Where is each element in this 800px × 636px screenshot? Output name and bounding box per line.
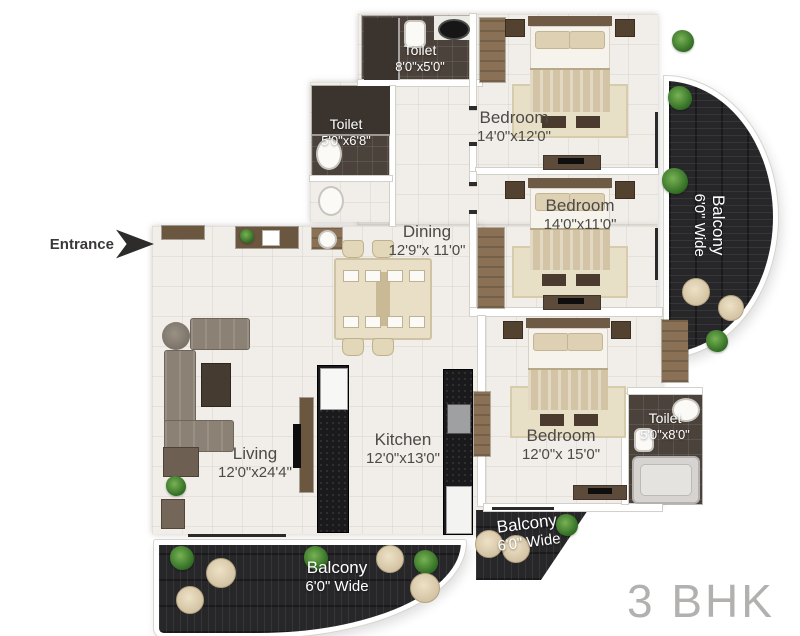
toilet-bottom-label: Toilet 5'0"x8'0" <box>626 410 704 442</box>
nightstand <box>504 322 522 338</box>
dining-chair <box>342 338 364 356</box>
sideboard-tray <box>262 230 280 246</box>
sink <box>446 486 472 534</box>
bathtub <box>632 456 700 504</box>
balcony-chair <box>410 573 440 603</box>
tv <box>558 298 584 304</box>
wall <box>390 86 395 226</box>
bed-bench <box>542 274 566 286</box>
bed-bench <box>574 414 598 426</box>
plan-type-label: 3 BHK <box>612 574 790 628</box>
window-mark <box>655 228 658 280</box>
floor-plan: Toilet 8'0"x5'0" Toilet 5'0"x6'8" Bedroo… <box>0 0 800 636</box>
bed-bench <box>540 414 564 426</box>
tv <box>558 158 584 164</box>
plant <box>170 546 194 570</box>
coffee-table <box>202 364 230 406</box>
plant <box>662 168 688 194</box>
wall <box>470 308 662 316</box>
bedroom-mid-label: Bedroom 14'0"x11'0" <box>504 196 656 234</box>
toilet-mid-label: Toilet 5'0"x6'8" <box>302 116 390 148</box>
nightstand <box>506 20 524 36</box>
bed <box>528 16 612 112</box>
plant <box>668 86 692 110</box>
wall <box>310 176 392 181</box>
balcony-chair <box>718 295 744 321</box>
tv <box>588 488 612 494</box>
nightstand <box>612 322 630 338</box>
plant <box>166 476 186 496</box>
entrance-arrow-icon <box>116 226 154 262</box>
dining-table <box>334 258 432 340</box>
plant <box>706 330 728 352</box>
nightstand <box>616 20 634 36</box>
balcony-bottom-label: Balcony 6'0" Wide <box>268 558 406 596</box>
basin <box>318 230 337 249</box>
sofa <box>190 318 250 350</box>
window-mark <box>492 507 554 510</box>
window-mark <box>655 112 658 168</box>
dining-chair <box>372 338 394 356</box>
balcony-right-label: Balcony 6'0" Wide <box>690 166 728 284</box>
tv-unit <box>164 448 198 476</box>
door-jamb <box>469 210 477 214</box>
door-jamb <box>469 182 477 186</box>
window-mark <box>188 534 286 537</box>
plant <box>414 550 438 574</box>
wall <box>628 388 702 394</box>
bed <box>526 318 610 410</box>
kitchen-label: Kitchen 12'0"x13'0" <box>344 430 462 468</box>
side-table <box>162 500 184 528</box>
fridge <box>320 368 348 410</box>
balcony-chair <box>206 558 236 588</box>
plant <box>240 229 254 243</box>
basin-dark <box>438 19 470 40</box>
wc <box>318 186 344 216</box>
console <box>162 226 204 239</box>
wardrobe <box>662 320 688 382</box>
balcony-chair <box>176 586 204 614</box>
round-chair <box>162 322 190 350</box>
plant <box>672 30 694 52</box>
toilet-top-label: Toilet 8'0"x5'0" <box>368 42 472 74</box>
dining-chair <box>342 240 364 258</box>
bed-bench <box>576 274 600 286</box>
wardrobe <box>480 18 505 82</box>
bedroom-bottom-label: Bedroom 12'0"x 15'0" <box>482 426 640 464</box>
dining-label: Dining 12'9"x 11'0" <box>368 222 486 260</box>
living-label: Living 12'0"x24'4" <box>194 444 316 482</box>
entrance-label: Entrance <box>44 236 114 253</box>
bedroom-top-label: Bedroom 14'0"x12'0" <box>438 108 590 146</box>
